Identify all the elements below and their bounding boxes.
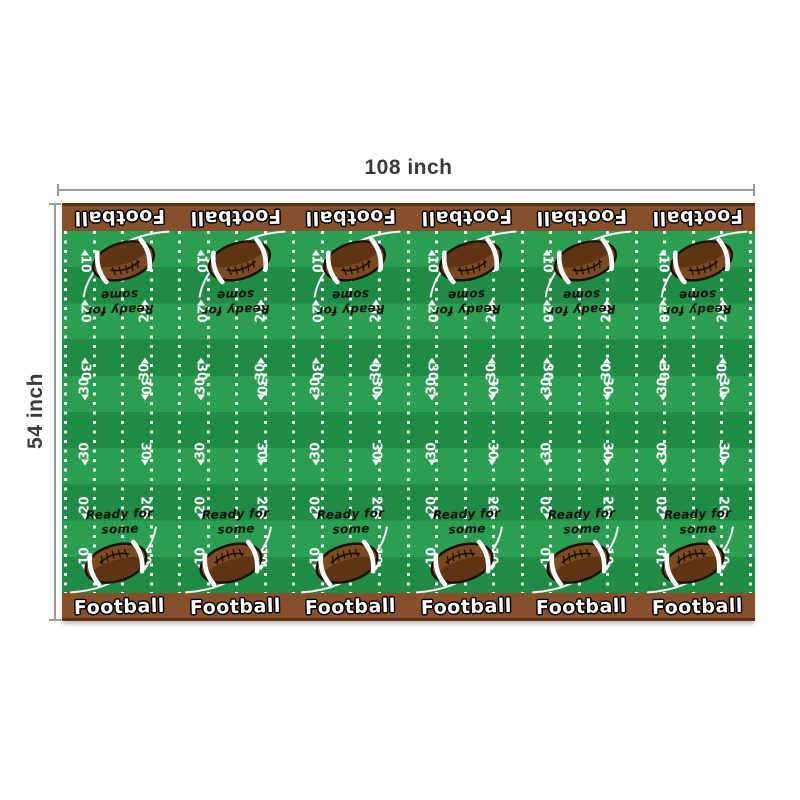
yard-number: 30 [541,442,554,459]
yard-arrow-icon [488,460,496,466]
yard-arrow-icon [141,460,149,466]
yard-number: 30 [601,377,614,394]
yard-arrow-icon [428,460,436,466]
design-group-top: Ready for some [409,229,525,325]
tablecloth-border-bottom: FootballFootballFootballFootballFootball… [62,593,755,621]
yard-marker-30: 30 [423,379,441,400]
yard-number: 30 [425,377,438,394]
yard-marker-30: 30 [654,445,672,466]
yard-marker-30: 30 [714,379,732,400]
football-word: Football [74,205,165,229]
football-word: Football [190,595,281,619]
yard-marker-30: 30 [192,357,210,378]
yard-number: 30 [485,442,498,459]
yard-arrow-icon [257,394,265,400]
football-word: Football [305,205,396,229]
football-word: Football [74,595,165,619]
tablecloth-field: Ready for some Ready for some 1010202030… [62,231,755,593]
football-icon [414,526,514,595]
border-word-cell: Football [409,593,525,621]
yard-marker-30: 30 [538,379,556,400]
yard-arrow-icon [81,460,89,466]
width-dimension-label: 108 inch [62,156,755,180]
yard-marker-30: 30 [423,357,441,378]
yard-marker-30: 30 [654,379,672,400]
yard-arrow-icon [81,394,89,400]
design-group-top: Ready for some [640,229,756,325]
height-dimension-label: 54 inch [24,373,48,449]
football-word: Football [190,205,281,229]
tablecloth-border-top: FootballFootballFootballFootballFootball… [62,203,755,231]
yard-marker-30: 30 [483,379,501,400]
yard-arrow-icon [603,460,611,466]
tablecloth-panel: Ready for some Ready for some 1010202030… [62,231,178,593]
design-group-top: Ready for some [178,229,294,325]
yard-arrow-icon [719,460,727,466]
football-icon [534,229,634,298]
yard-marker-30: 30 [136,357,154,378]
yard-marker-30: 30 [538,357,556,378]
football-icon [68,526,168,595]
yard-arrow-icon [488,394,496,400]
football-word: Football [536,205,627,229]
yard-arrow-icon [197,394,205,400]
yard-number: 30 [656,377,669,394]
yard-marker-30: 30 [598,379,616,400]
football-word: Football [652,205,743,229]
border-word-cell: Football [293,593,409,621]
yard-number: 30 [310,442,323,459]
yard-number: 30 [194,377,207,394]
yard-number: 30 [716,377,729,394]
football-word: Football [421,205,512,229]
yard-number: 30 [601,442,614,459]
design-group-bottom: Ready for some [62,499,178,595]
yard-number: 30 [370,442,383,459]
border-word-cell: Football [524,203,640,231]
yard-marker-30: 30 [307,445,325,466]
yard-number: 30 [656,442,669,459]
football-icon [72,229,172,298]
yard-marker-30: 30 [192,379,210,400]
football-icon [645,526,745,595]
yard-marker-30: 30 [307,379,325,400]
yard-number: 30 [541,377,554,394]
yard-number: 30 [254,377,267,394]
yard-number: 30 [370,377,383,394]
yard-number: 30 [425,442,438,459]
football-icon [187,229,287,298]
yard-arrow-icon [719,394,727,400]
yard-number: 30 [139,442,152,459]
yard-arrow-icon [141,394,149,400]
football-icon [649,229,749,298]
yard-marker-30: 30 [538,445,556,466]
yard-marker-30: 30 [714,445,732,466]
border-word-cell: Football [524,593,640,621]
football-icon [183,526,283,595]
yard-number: 30 [254,442,267,459]
yard-number: 30 [310,377,323,394]
yard-arrow-icon [659,460,667,466]
yard-marker-30: 30 [252,379,270,400]
yard-number: 30 [194,442,207,459]
football-icon [530,526,630,595]
yard-marker-30: 30 [483,445,501,466]
yard-marker-30: 30 [136,379,154,400]
yard-marker-30: 30 [367,379,385,400]
width-dimension-line [57,189,755,191]
height-dimension-line [54,203,56,621]
yard-marker-30: 30 [76,357,94,378]
football-icon [418,229,518,298]
design-group-top: Ready for some [293,229,409,325]
design-group-bottom: Ready for some [178,499,294,595]
yard-marker-30: 30 [598,357,616,378]
border-word-cell: Football [293,203,409,231]
yard-arrow-icon [603,394,611,400]
yard-marker-30: 30 [598,445,616,466]
design-group-bottom: Ready for some [640,499,756,595]
football-tablecloth: FootballFootballFootballFootballFootball… [62,203,755,621]
border-word-cell: Football [640,593,756,621]
yard-marker-30: 30 [423,445,441,466]
football-word: Football [305,595,396,619]
tablecloth-panel: Ready for some Ready for some 1010202030… [524,231,640,593]
design-group-bottom: Ready for some [409,499,525,595]
football-word: Football [421,595,512,619]
yard-marker-30: 30 [654,357,672,378]
design-group-top: Ready for some [524,229,640,325]
yard-arrow-icon [543,394,551,400]
yard-arrow-icon [312,460,320,466]
yard-number: 30 [716,442,729,459]
yard-arrow-icon [372,460,380,466]
yard-number: 30 [485,377,498,394]
yard-marker-30: 30 [76,445,94,466]
design-group-bottom: Ready for some [293,499,409,595]
yard-arrow-icon [257,460,265,466]
football-icon [299,526,399,595]
yard-marker-30: 30 [136,445,154,466]
yard-number: 30 [139,377,152,394]
yard-number: 30 [79,442,92,459]
yard-arrow-icon [659,394,667,400]
border-word-row-top: FootballFootballFootballFootballFootball… [62,203,755,231]
yard-arrow-icon [372,394,380,400]
football-word: Football [536,595,627,619]
yard-marker-30: 30 [307,357,325,378]
design-group-bottom: Ready for some [524,499,640,595]
yard-arrow-icon [312,394,320,400]
yard-marker-30: 30 [252,445,270,466]
yard-arrow-icon [428,394,436,400]
yard-marker-30: 30 [192,445,210,466]
border-word-row-bottom: FootballFootballFootballFootballFootball… [62,593,755,621]
football-icon [303,229,403,298]
yard-marker-30: 30 [367,357,385,378]
yard-number: 30 [79,377,92,394]
design-group-top: Ready for some [62,229,178,325]
border-word-cell: Football [62,593,178,621]
yard-marker-30: 30 [252,357,270,378]
tablecloth-panel: Ready for some Ready for some 1010202030… [640,231,756,593]
border-word-cell: Football [640,203,756,231]
yard-arrow-icon [197,460,205,466]
yard-marker-30: 30 [714,357,732,378]
yard-arrow-icon [543,460,551,466]
yard-marker-30: 30 [483,357,501,378]
border-word-cell: Football [62,203,178,231]
yard-marker-30: 30 [367,445,385,466]
border-word-cell: Football [178,203,294,231]
product-dimension-image: 108 inch 54 inch FootballFootballFootbal… [0,0,800,800]
border-word-cell: Football [409,203,525,231]
yard-marker-30: 30 [76,379,94,400]
border-word-cell: Football [178,593,294,621]
football-word: Football [652,595,743,619]
